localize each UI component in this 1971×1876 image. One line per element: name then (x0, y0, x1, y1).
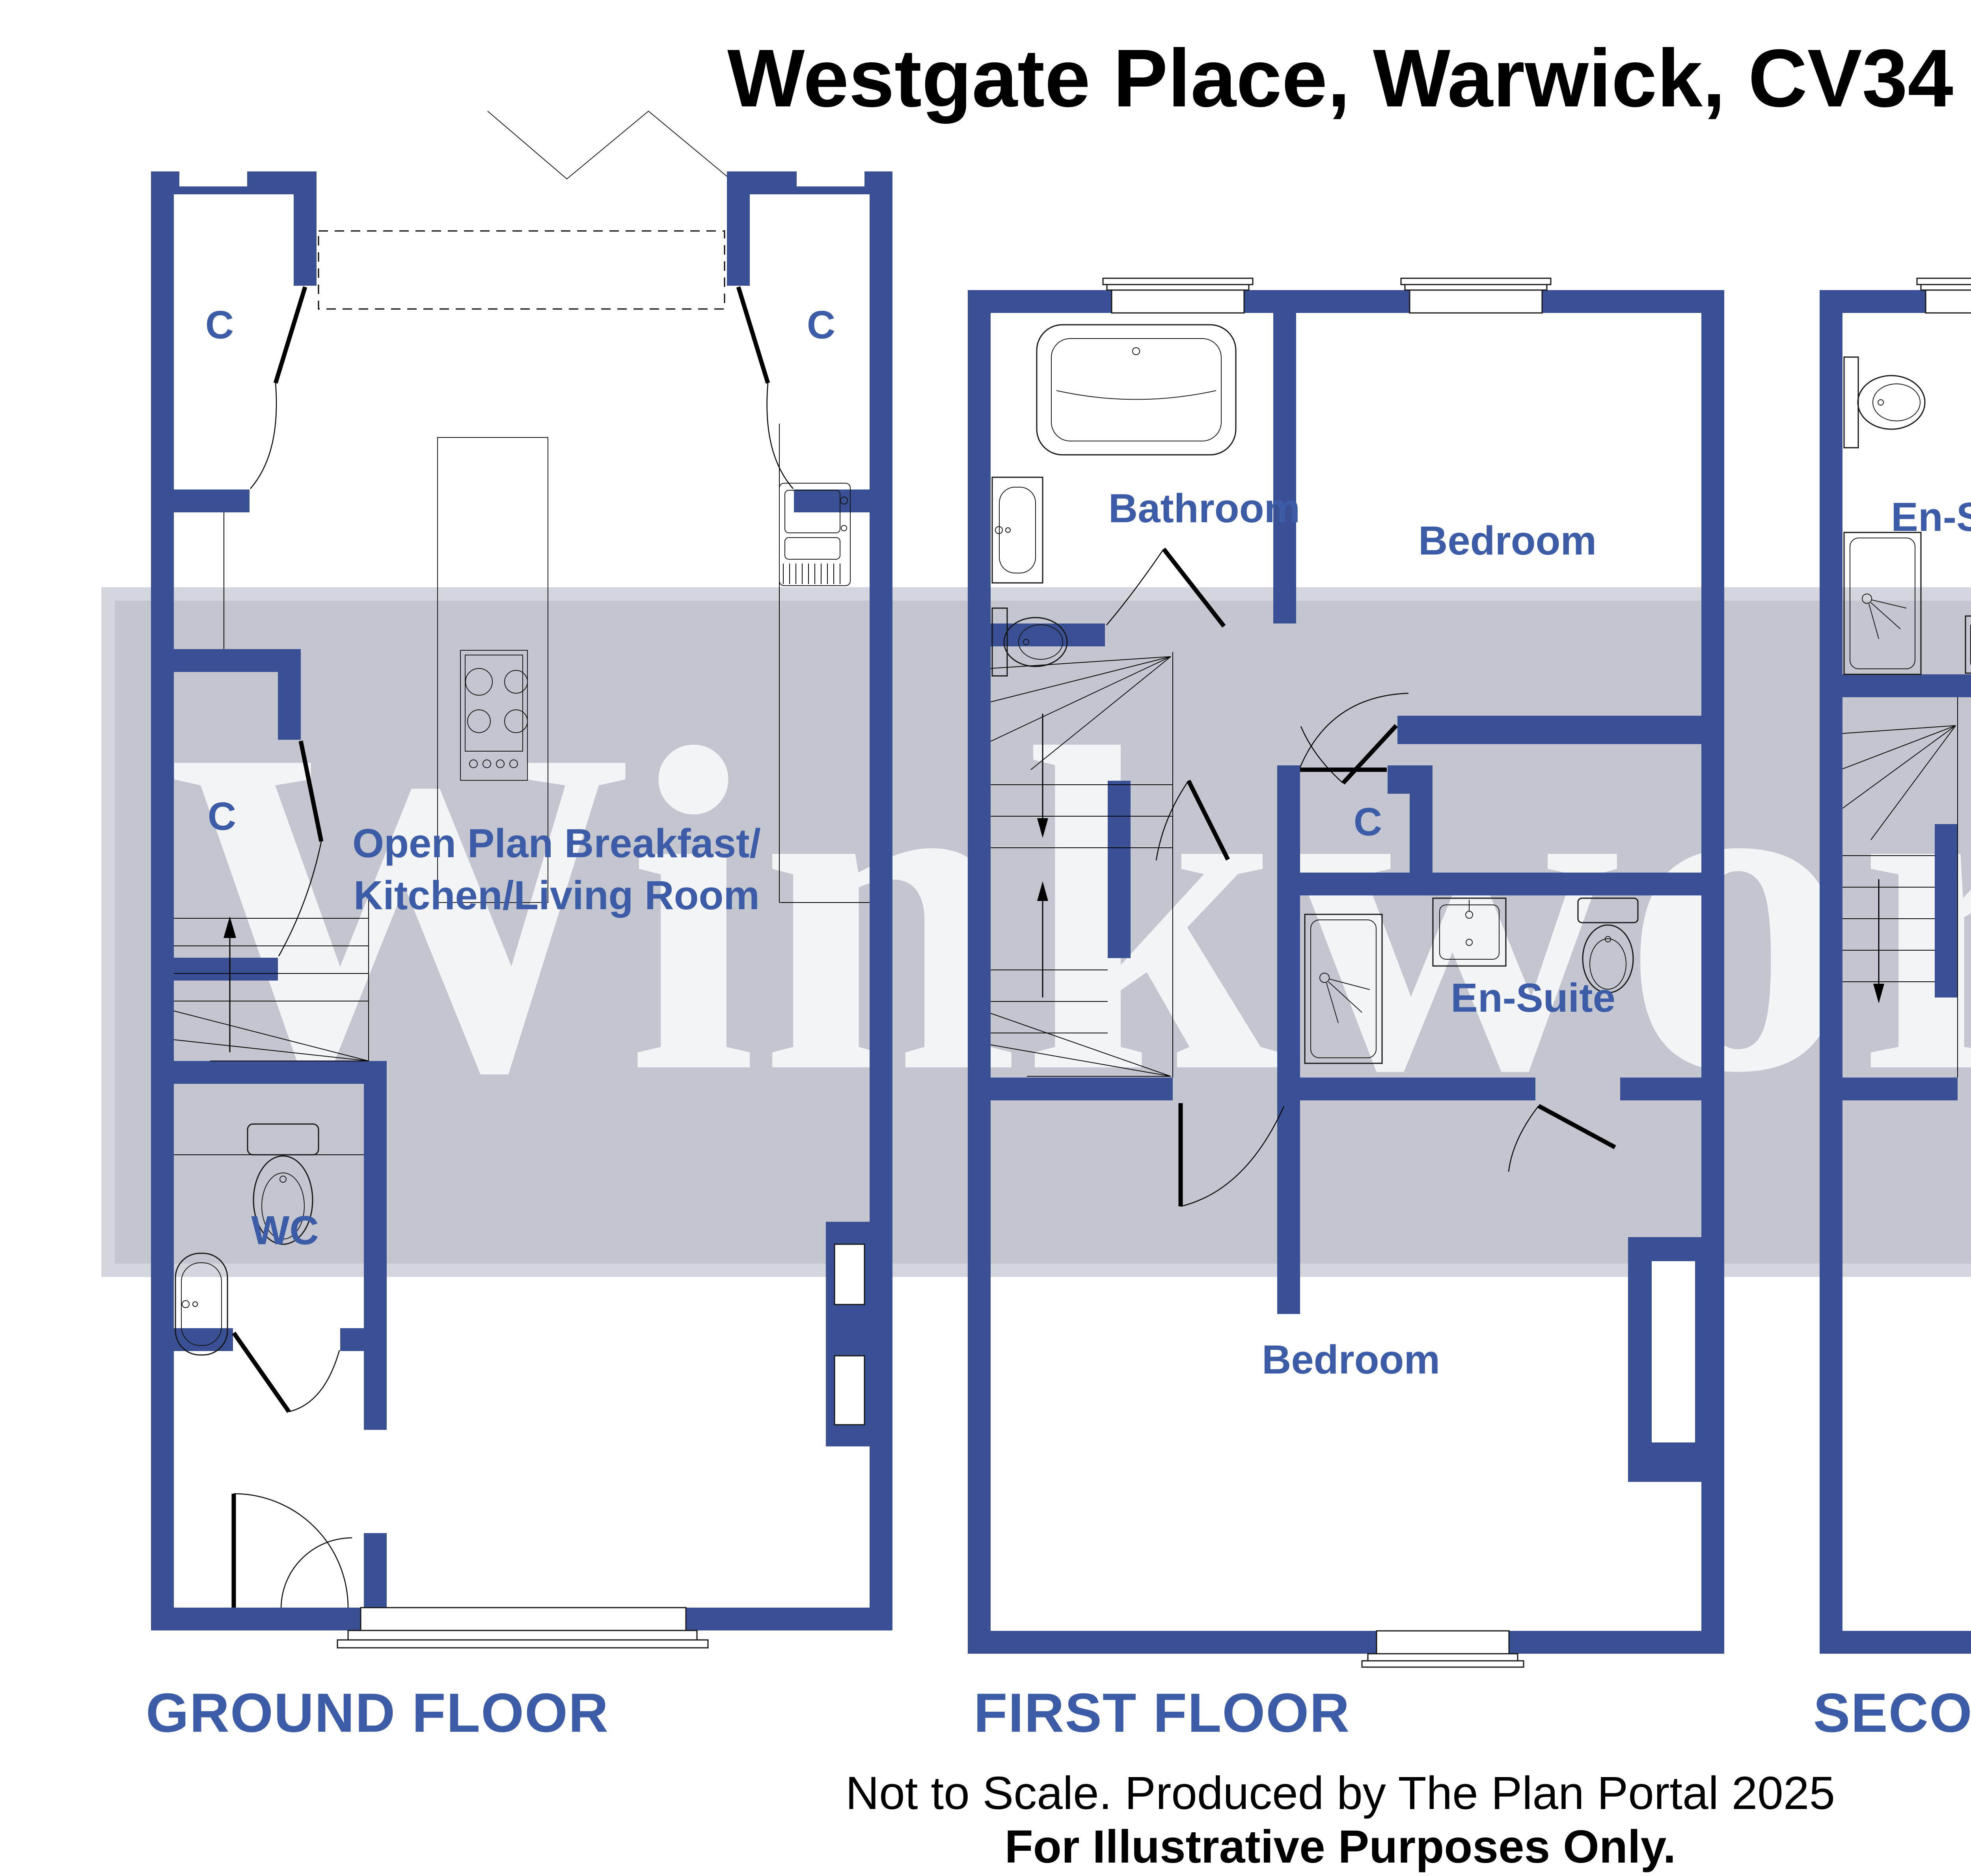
room-label-closet: C (807, 303, 835, 348)
ground-floor-plan (151, 91, 892, 1651)
roof-outline (488, 111, 730, 179)
room-label-bathroom: Bathroom (1108, 485, 1300, 532)
floor-title-ground: GROUND FLOOR (146, 1681, 609, 1745)
room-label-open-plan-line1: Open Plan Breakfast/ (352, 820, 761, 867)
room-label-closet: C (205, 303, 234, 348)
floor-title-second: SECOND FLOOR (1813, 1681, 1971, 1745)
room-label-closet: C (1354, 800, 1382, 845)
entrance-door (234, 1494, 352, 1608)
floor-title-first: FIRST FLOOR (974, 1681, 1350, 1745)
room-label-ensuite: En-Suite (1451, 975, 1615, 1021)
basin-icon (1965, 616, 1971, 673)
stairs (991, 652, 1173, 1078)
room-label-open-plan-line2: Kitchen/Living Room (354, 872, 760, 919)
wc-door (234, 1333, 339, 1412)
window (337, 1608, 708, 1648)
shower-icon (1844, 532, 1921, 674)
bedroom-door (1301, 726, 1396, 783)
room-label-bedroom: Bedroom (1262, 1336, 1440, 1383)
room-label-wc: WC (251, 1207, 319, 1254)
bedroom-bottom-door (1181, 1103, 1284, 1206)
bath-icon (1037, 325, 1236, 455)
toilet-icon (1844, 357, 1925, 448)
room-label-bedroom: Bedroom (1418, 517, 1597, 564)
ensuite-door (1509, 1106, 1615, 1172)
walls (968, 290, 1724, 1654)
footer-illustrative: For Illustrative Purposes Only. (1005, 1820, 1676, 1874)
page-title: Westgate Place, Warwick, CV34 (727, 32, 1953, 126)
shower-icon (1305, 914, 1382, 1063)
room-label-closet: C (208, 794, 236, 839)
bathroom-door (1107, 549, 1224, 626)
basin-icon (992, 477, 1043, 583)
floorplan-page: Winkworth (0, 0, 1971, 1876)
hob-icon (460, 650, 527, 780)
second-floor-plan (1820, 272, 1971, 1691)
vaulted-area-dashed (319, 231, 725, 309)
sink-icon (1433, 898, 1506, 966)
room-label-ensuite: En-Suite (1891, 494, 1971, 540)
footer-disclaimer: Not to Scale. Produced by The Plan Porta… (846, 1766, 1835, 1820)
